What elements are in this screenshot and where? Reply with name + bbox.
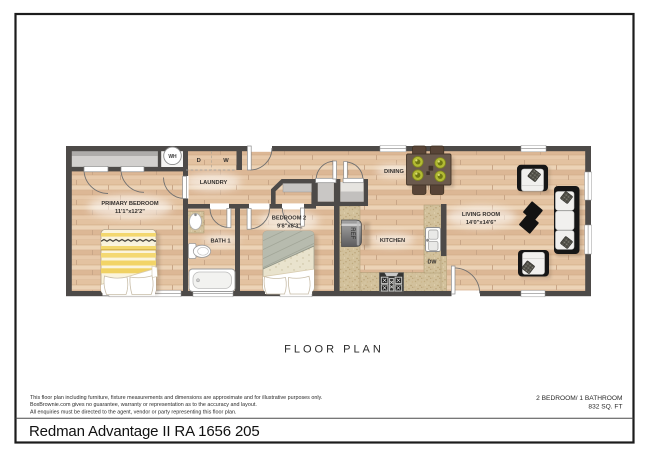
svg-text:9'8"x8'3": 9'8"x8'3" [277,224,301,230]
svg-text:BoxBrownie.com gives no guaran: BoxBrownie.com gives no guarantee, warra… [30,402,257,408]
svg-text:832 SQ. FT: 832 SQ. FT [588,403,622,410]
svg-text:D: D [197,158,201,164]
svg-text:KITCHEN: KITCHEN [380,238,405,244]
svg-text:LAUNDRY: LAUNDRY [200,180,228,186]
svg-text:LIVING ROOM: LIVING ROOM [462,212,500,218]
svg-text:11'1"x12'2": 11'1"x12'2" [115,209,145,215]
svg-text:BEDROOM 2: BEDROOM 2 [272,216,306,222]
svg-text:FLOOR PLAN: FLOOR PLAN [284,344,384,356]
svg-text:DINING: DINING [384,169,404,175]
svg-text:All enquiries must be directed: All enquiries must be directed to the ag… [30,409,236,415]
svg-text:W: W [223,158,229,164]
svg-text:BATH 1: BATH 1 [210,239,230,245]
svg-text:Redman Advantage II RA 1656 20: Redman Advantage II RA 1656 205 [29,423,260,440]
svg-text:REF: REF [349,227,355,239]
svg-text:2 BEDROOM/ 1 BATHROOM: 2 BEDROOM/ 1 BATHROOM [536,395,622,402]
svg-text:PRIMARY BEDROOM: PRIMARY BEDROOM [101,201,158,207]
svg-text:This floor plan including furn: This floor plan including furniture, fix… [30,395,322,401]
svg-text:14'0"x14'6": 14'0"x14'6" [466,220,497,226]
svg-text:WH: WH [168,154,177,160]
svg-text:DW: DW [428,260,438,266]
